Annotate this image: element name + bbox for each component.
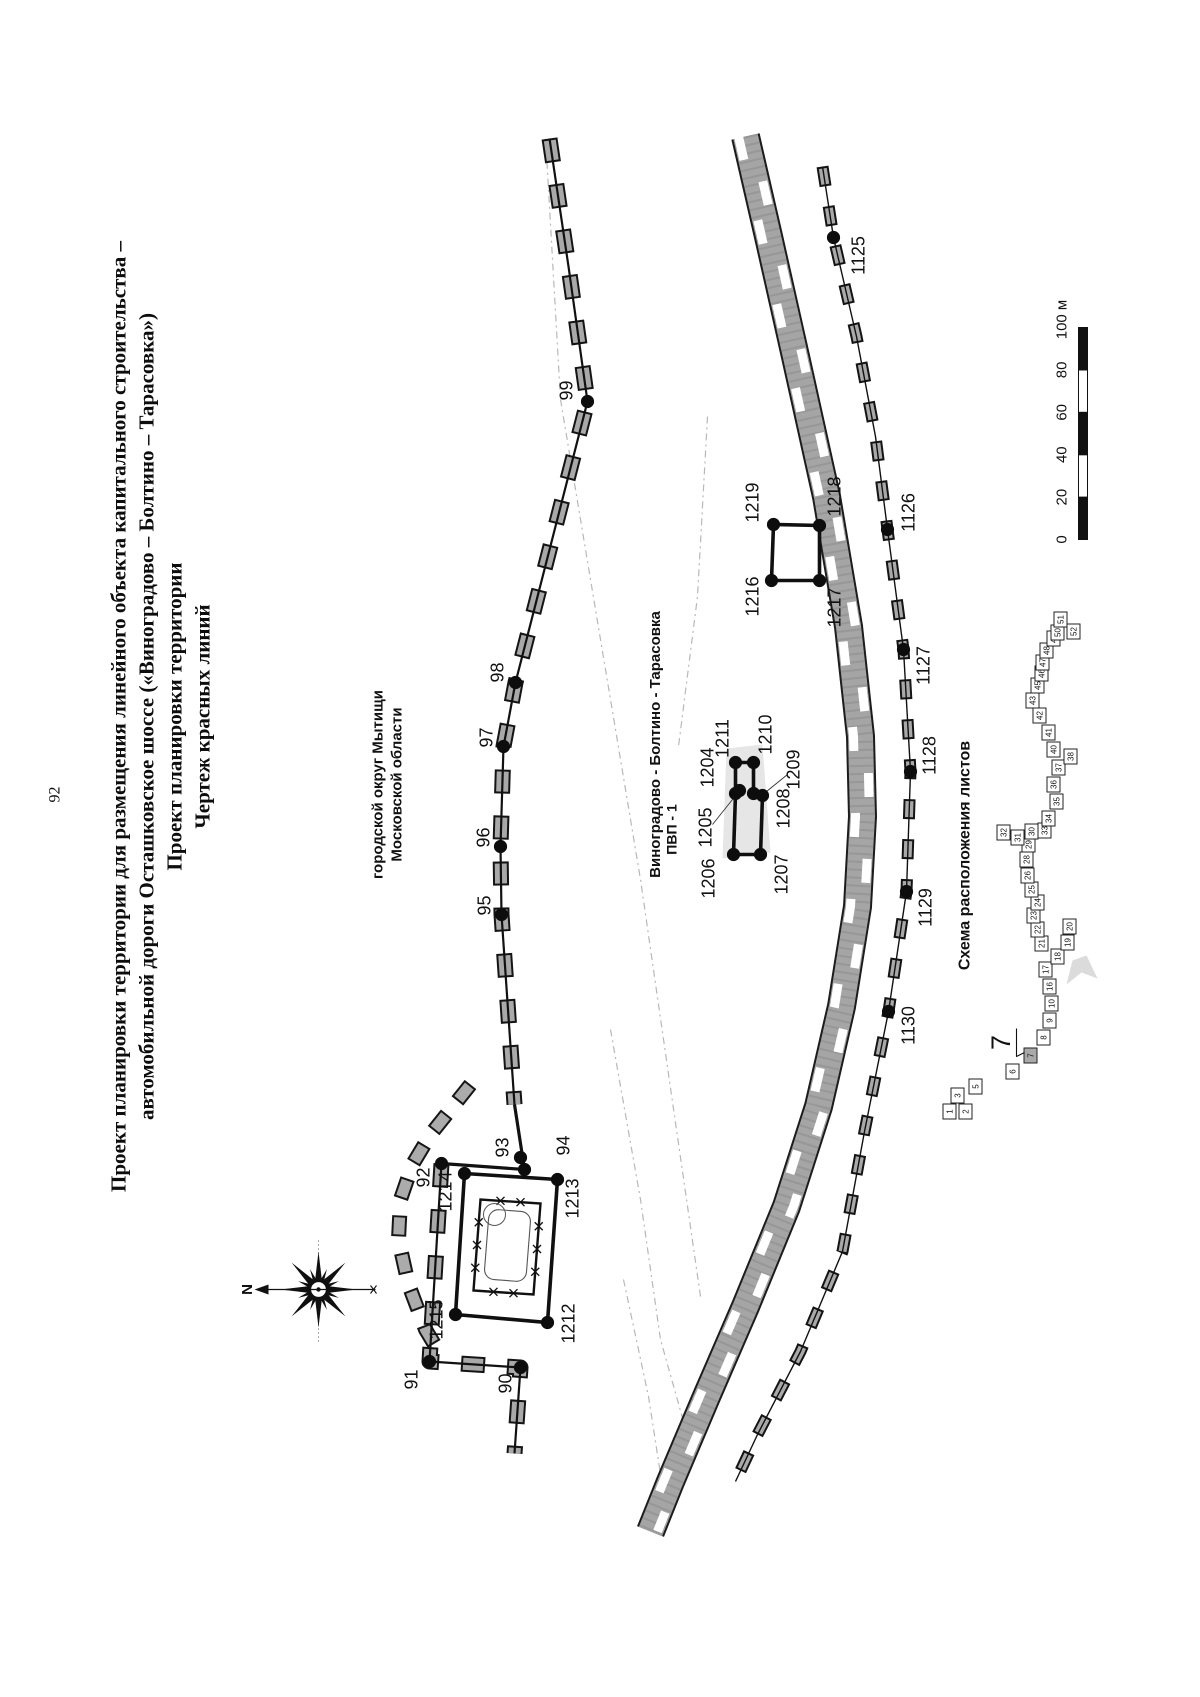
map-point-1206	[727, 848, 740, 861]
map-point-label-1206: 1206	[699, 858, 719, 898]
pvp-red-line-segment	[761, 796, 763, 855]
map-point-label-98: 98	[488, 662, 508, 682]
sheet-tile-number-52: 52	[1070, 627, 1079, 636]
title-line-4: Чертеж красных линий	[189, 142, 217, 1292]
scale-bar-label-0: 0	[1054, 535, 1071, 543]
map-point-label-1126: 1126	[899, 493, 919, 532]
scale-bar-label-40: 40	[1054, 446, 1071, 463]
red-line-hatch-fill	[501, 139, 588, 1105]
title-line-1: Проект планировки территории для размеще…	[105, 142, 133, 1292]
pvp-label: ПВП - 1	[664, 804, 680, 854]
sheet-tile-number-32: 32	[1000, 828, 1009, 837]
sheet-tile-number-17: 17	[1042, 965, 1051, 974]
sheet-tile-number-35: 35	[1053, 797, 1062, 806]
map-point-label-1215: 1215	[427, 1299, 447, 1339]
scale-bar-label-100-м: 100 м	[1054, 300, 1071, 340]
sheet-tile-number-24: 24	[1034, 898, 1043, 907]
map-point-90	[514, 1361, 527, 1374]
scale-bar-segment	[1079, 455, 1088, 497]
map-point-1210	[747, 756, 760, 769]
map-point-label-93: 93	[493, 1137, 513, 1157]
sheet-tile-number-5: 5	[972, 1084, 981, 1089]
pvp-red-line-segment	[734, 794, 736, 855]
sheet-tile-number-41: 41	[1045, 728, 1054, 737]
map-point-99	[581, 395, 594, 408]
map-point-1126	[881, 523, 894, 536]
map-point-label-1208: 1208	[774, 788, 794, 828]
map-point-1211	[729, 756, 742, 769]
map-point-label-1218: 1218	[825, 476, 845, 516]
sheet-tile-number-33: 33	[1041, 826, 1050, 835]
map-point-label-1128: 1128	[920, 736, 940, 775]
scale-bar-segment	[1079, 412, 1088, 454]
map-point-label-1214: 1214	[436, 1171, 456, 1211]
scale-bar-label-80: 80	[1054, 362, 1071, 379]
sheet-tile-number-29: 29	[1025, 840, 1034, 849]
map-point-label-95: 95	[475, 895, 495, 915]
sheet-tile-number-20: 20	[1066, 922, 1075, 931]
map-point-label-97: 97	[477, 727, 497, 747]
document-page: 9091929394959697989911251126112711281129…	[0, 0, 1200, 1697]
map-point-label-1209: 1209	[784, 749, 804, 789]
district-label-line-1: городской округ Мытищи	[369, 690, 388, 879]
map-point-96	[494, 840, 507, 853]
map-point-92	[435, 1157, 448, 1170]
sheet-tile-number-19: 19	[1064, 938, 1073, 947]
sheet-tile-number-31: 31	[1014, 833, 1023, 842]
map-point-label-1130: 1130	[899, 1006, 919, 1045]
faint-boundary-line	[546, 137, 701, 1297]
map-point-97	[497, 740, 510, 753]
map-point-98	[509, 676, 522, 689]
scale-bar-label-60: 60	[1054, 404, 1071, 421]
map-point-label-1210: 1210	[756, 714, 776, 754]
map-point-label-96: 96	[474, 827, 494, 847]
map-point-label-1212: 1212	[559, 1303, 579, 1343]
map-point-1218	[813, 519, 826, 532]
map-point-label-91: 91	[402, 1369, 422, 1389]
page-number: 92	[47, 787, 65, 803]
map-point-label-1129: 1129	[916, 888, 936, 927]
faint-boundary-line	[679, 417, 708, 747]
sheet-tile-number-34: 34	[1045, 814, 1054, 823]
map-point-1214	[458, 1167, 471, 1180]
map-point-label-1217: 1217	[825, 587, 845, 627]
map-point-95	[495, 908, 508, 921]
map-point-label-99: 99	[557, 380, 577, 400]
sheet-callout-label: 7	[986, 1035, 1017, 1050]
inner-yard-outline	[484, 1209, 531, 1282]
sheet-tile-number-45: 45	[1034, 681, 1043, 690]
compass-north-label: N	[239, 1284, 256, 1295]
map-point-1128	[904, 765, 917, 778]
map-point-1129	[900, 885, 913, 898]
sheet-tile-number-6: 6	[1009, 1069, 1018, 1074]
sheet-tile-number-8: 8	[1040, 1035, 1049, 1040]
map-point-1216	[765, 574, 778, 587]
sheet-tile-number-37: 37	[1055, 763, 1064, 772]
map-point-label-90: 90	[496, 1373, 516, 1393]
compass-north-arrowhead	[255, 1285, 269, 1295]
map-point-93	[514, 1151, 527, 1164]
map-point-1212	[541, 1316, 554, 1329]
map-point-1205	[733, 784, 746, 797]
drawing-title: Проект планировки территории для размеще…	[105, 142, 217, 1292]
map-point-1209	[756, 789, 769, 802]
sheet-tile-number-36: 36	[1050, 780, 1059, 789]
map-point-label-92: 92	[414, 1167, 434, 1187]
sheet-tile-number-1: 1	[946, 1109, 955, 1114]
map-point-1127	[897, 643, 910, 656]
sheet-tile-number-21: 21	[1038, 939, 1047, 948]
sheet-callout-leader	[1017, 1029, 1025, 1057]
map-point-1215	[449, 1308, 462, 1321]
sheet-tile-number-7: 7	[1027, 1053, 1036, 1058]
district-label: городской округ Мытищи Московской област…	[369, 690, 407, 879]
sheet-tile-number-38: 38	[1067, 752, 1076, 761]
map-point-1207	[754, 848, 767, 861]
sheet-tile-number-9: 9	[1046, 1018, 1055, 1023]
sheet-tile-number-28: 28	[1023, 855, 1032, 864]
sheet-tile-number-16: 16	[1046, 982, 1055, 991]
route-label: Виноградово - Болтино - Тарасовка	[647, 611, 664, 878]
parcel-red-line-rect	[456, 1174, 558, 1323]
map-point-1130	[882, 1005, 895, 1018]
map-point-label-1216: 1216	[743, 576, 763, 616]
sheet-tile-number-10: 10	[1048, 999, 1057, 1008]
map-point-label-1125: 1125	[849, 236, 869, 275]
sheet-tile-number-3: 3	[954, 1093, 963, 1098]
sheet-tile-number-23: 23	[1030, 911, 1039, 920]
scale-bar-segment	[1079, 370, 1088, 412]
title-line-3: Проект планировки территории	[161, 142, 189, 1292]
sheet-tile-number-18: 18	[1054, 952, 1063, 961]
sheet-tile-number-47: 47	[1039, 658, 1048, 667]
map-point-label-1219: 1219	[743, 482, 763, 522]
sheet-tile-number-40: 40	[1050, 745, 1059, 754]
district-label-line-2: Московской области	[388, 690, 407, 879]
map-point-1125	[827, 231, 840, 244]
quad-red-line-rect	[772, 525, 820, 581]
sheet-scheme-title: Схема расположения листов	[957, 741, 975, 970]
map-point-label-1205: 1205	[696, 807, 716, 847]
map-point-94	[518, 1163, 531, 1176]
scan-smudge	[1067, 956, 1098, 985]
sheet-tile-number-42: 42	[1036, 711, 1045, 720]
sheet-tile-number-26: 26	[1024, 871, 1033, 880]
inner-yard-circle	[484, 1204, 506, 1226]
map-point-label-94: 94	[554, 1135, 574, 1155]
rotated-drawing-canvas: 9091929394959697989911251126112711281129…	[1, 0, 1200, 1697]
sheet-tile-number-50: 50	[1054, 628, 1063, 637]
scale-bar-segment	[1079, 328, 1088, 370]
map-point-1219	[767, 518, 780, 531]
map-point-label-1211: 1211	[713, 719, 733, 758]
sheet-tile-number-25: 25	[1028, 885, 1037, 894]
map-point-label-1207: 1207	[772, 854, 792, 894]
map-point-91	[423, 1355, 436, 1368]
sheet-tile-number-2: 2	[962, 1109, 971, 1114]
sheet-tile-number-48: 48	[1043, 646, 1052, 655]
sheet-tile-number-30: 30	[1028, 827, 1037, 836]
scale-bar-segment	[1079, 497, 1088, 539]
map-point-label-1127: 1127	[914, 646, 934, 685]
sheet-tile-number-51: 51	[1057, 615, 1066, 624]
sheet-tile-number-22: 22	[1034, 925, 1043, 934]
scale-bar-label-20: 20	[1054, 489, 1071, 506]
faint-boundary-line	[611, 1030, 691, 1447]
title-line-2: автомобильной дороги Осташковское шоссе …	[133, 142, 161, 1292]
sheet-tile-number-43: 43	[1029, 696, 1038, 705]
map-point-1217	[813, 574, 826, 587]
map-point-label-1213: 1213	[563, 1178, 583, 1218]
